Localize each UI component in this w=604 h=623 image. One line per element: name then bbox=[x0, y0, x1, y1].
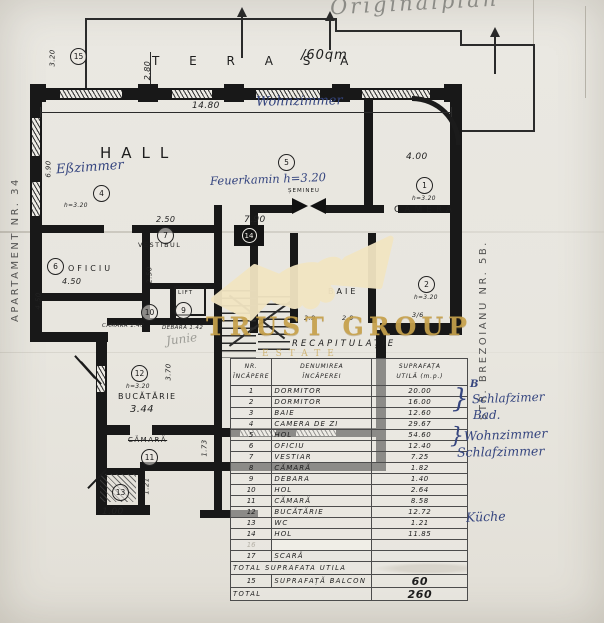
terrace-outline bbox=[85, 18, 335, 20]
c-name: BAIE bbox=[272, 408, 372, 419]
recapitulation-title: RECAPITULAȚIE bbox=[292, 339, 396, 349]
c-nr: 1 bbox=[231, 386, 272, 397]
dim-camera-width: 4.00 bbox=[406, 152, 428, 162]
semineu-label: ȘEMINEU bbox=[288, 188, 320, 194]
table-row: 1DORMITOR20.00 bbox=[231, 386, 468, 397]
dim-hall-left: 6.90 bbox=[45, 160, 53, 177]
ceiling-height-note: h=3.20 bbox=[414, 295, 438, 301]
wall-segment bbox=[364, 100, 373, 205]
room-number-6: 6 bbox=[47, 258, 64, 275]
table-row: 12BUCĂTĂRIE12.72 bbox=[231, 507, 468, 518]
c-name: BUCĂTĂRIE bbox=[272, 507, 372, 518]
column-block bbox=[138, 84, 158, 102]
north-arrow-icon bbox=[329, 20, 331, 50]
dim-hol-width: 7.90 bbox=[244, 215, 266, 225]
c-name: HOL bbox=[272, 485, 372, 496]
header-area: SUPRAFAȚA UTILĂ (m.p.) bbox=[372, 359, 468, 386]
dim-wc-width: 1.00 bbox=[102, 507, 124, 517]
margin-note-schlafzimmer-2: Schlafzimmer bbox=[457, 443, 545, 460]
scanned-floor-plan-page: Originalplan 15 T E R A S A /60qm 2.80 3… bbox=[0, 0, 604, 623]
room-number-12: 12 bbox=[131, 365, 148, 382]
c-area: 1.40 bbox=[372, 474, 468, 485]
margin-note-kueche: Küche bbox=[466, 508, 506, 524]
c-name bbox=[272, 540, 372, 551]
table-row: 16 bbox=[231, 540, 468, 551]
c-nr: 5 bbox=[231, 430, 272, 441]
window-hatch bbox=[32, 118, 40, 156]
c-nr: 8 bbox=[231, 463, 272, 474]
recapitulation-table-wrap: NR. ÎNCĂPERE DENUMIREA ÎNCĂPEREI SUPRAFA… bbox=[230, 358, 468, 601]
c-name: HOL bbox=[272, 430, 372, 441]
room-number-7: 7 bbox=[157, 227, 174, 244]
paper-fold-line bbox=[585, 6, 586, 98]
dim-vestibul-width: 2.50 bbox=[156, 215, 175, 224]
room-number-1: 1 bbox=[416, 177, 433, 194]
room-number-9: 9 bbox=[175, 302, 192, 319]
table-row: 13WC1.21 bbox=[231, 518, 468, 529]
dim-terrace-left: 3.20 bbox=[49, 49, 57, 66]
room-number-10: 10 bbox=[141, 304, 158, 321]
wall-segment bbox=[258, 205, 294, 213]
dim-oficiu-width: 4.50 bbox=[62, 277, 81, 286]
table-row: 9DEBARA1.40 bbox=[231, 474, 468, 485]
table-row: 17SCARĂ bbox=[231, 551, 468, 562]
c-nr: 14 bbox=[231, 529, 272, 540]
header-text: NR. bbox=[233, 362, 269, 372]
street-note-right: STR. BREZOIANU NR. 5B. bbox=[478, 120, 489, 420]
header-text: DENUMIREA bbox=[274, 362, 369, 372]
c-nr: 2 bbox=[231, 397, 272, 408]
c-nr: 11 bbox=[231, 496, 272, 507]
c-nr: 3 bbox=[231, 408, 272, 419]
esszimmer-note: Eßzimmer bbox=[56, 158, 125, 178]
c-name: WC bbox=[272, 518, 372, 529]
c-nr: 15 bbox=[231, 575, 272, 588]
dimension-tick bbox=[40, 107, 41, 117]
table-row: 7VESTIAR7.25 bbox=[231, 452, 468, 463]
dim-left-lower: 4.50 bbox=[35, 292, 43, 309]
street-note-left: APARTAMENT NR. 34 bbox=[10, 82, 21, 322]
c-area: 8.58 bbox=[372, 496, 468, 507]
table-row: 14HOL11.85 bbox=[231, 529, 468, 540]
terrace-outline bbox=[460, 44, 535, 46]
debara-area-note: DEBARA 1.42 bbox=[162, 325, 203, 331]
camara-area-note: CĂMARĂ 1.40 bbox=[102, 323, 144, 329]
window-hatch bbox=[172, 90, 212, 98]
c-nr: 16 bbox=[231, 540, 272, 551]
c-nr: 6 bbox=[231, 441, 272, 452]
terrace-outline bbox=[335, 30, 462, 32]
dimension-tick bbox=[451, 107, 452, 117]
room-number-2: 2 bbox=[418, 276, 435, 293]
room-number-11: 11 bbox=[141, 449, 158, 466]
c-area bbox=[372, 540, 468, 551]
table-row: 6OFICIU12.40 bbox=[231, 441, 468, 452]
wall-segment bbox=[42, 293, 142, 301]
wall-segment bbox=[42, 225, 104, 233]
pencil-scribble: Junie bbox=[165, 330, 198, 348]
ceiling-height-note: h=3.20 bbox=[64, 203, 88, 209]
header-text: ÎNCĂPERE bbox=[233, 372, 269, 382]
margin-brace: } bbox=[452, 384, 469, 414]
header-nr: NR. ÎNCĂPERE bbox=[231, 359, 272, 386]
footer-value: 60 bbox=[372, 575, 468, 588]
table-footer-row: TOTAL260 bbox=[231, 588, 468, 601]
terrace-outline bbox=[533, 44, 535, 132]
lift-label: LIFT bbox=[178, 290, 193, 296]
wall-segment bbox=[326, 205, 384, 213]
footer-label: SUPRAFAȚĂ BALCON bbox=[272, 575, 372, 588]
wall-segment bbox=[152, 425, 214, 435]
c-area: 12.72 bbox=[372, 507, 468, 518]
c-area: 1.82 bbox=[372, 463, 468, 474]
north-arrow-icon bbox=[241, 16, 243, 58]
dim-overall-width: 14.80 bbox=[192, 101, 220, 111]
table-row: 8CĂMARĂ1.82 bbox=[231, 463, 468, 474]
room-number-13: 13 bbox=[112, 484, 129, 501]
c-nr: 10 bbox=[231, 485, 272, 496]
c-name: CĂMARĂ bbox=[272, 496, 372, 507]
c-area: 7.25 bbox=[372, 452, 468, 463]
c-name: HOL bbox=[272, 529, 372, 540]
recap-table-footer: TOTAL SUPRAFATA UTILA15SUPRAFAȚĂ BALCON6… bbox=[231, 562, 468, 601]
column-block bbox=[224, 84, 244, 102]
table-row: 5HOL54.60 bbox=[231, 430, 468, 441]
c-nr: 12 bbox=[231, 507, 272, 518]
c-nr: 4 bbox=[231, 419, 272, 430]
top-margin-handwriting: Originalplan bbox=[329, 0, 499, 19]
fireplace-icon bbox=[310, 198, 326, 214]
room-number-4: 4 bbox=[93, 185, 110, 202]
north-arrow-icon bbox=[494, 36, 496, 74]
c-name: OFICIU bbox=[272, 441, 372, 452]
camara-label-struck: CĂMARĂ bbox=[128, 436, 167, 444]
column-block bbox=[444, 84, 462, 102]
terrace-area-note: /60qm bbox=[301, 48, 348, 63]
c-name: DORMITOR bbox=[272, 397, 372, 408]
recapitulation-table: NR. ÎNCĂPERE DENUMIREA ÎNCĂPEREI SUPRAFA… bbox=[230, 358, 468, 601]
margin-letter-b: B bbox=[470, 379, 478, 390]
wohnzimmer-note: Wohnzimmer bbox=[256, 93, 343, 110]
room-number-15: 15 bbox=[70, 48, 87, 65]
header-text: ÎNCĂPEREI bbox=[274, 372, 369, 382]
watermark-brand: TRUST GROUP bbox=[206, 312, 472, 341]
footer-value bbox=[372, 562, 468, 575]
c-nr: 17 bbox=[231, 551, 272, 562]
recap-table-body: 1DORMITOR20.002DORMITOR16.003BAIE12.604C… bbox=[231, 386, 468, 562]
dimension-line bbox=[40, 112, 452, 113]
margin-note-schlafzimmer-1: Schlafzimer bbox=[472, 390, 545, 407]
c-area bbox=[372, 551, 468, 562]
ceiling-height-note: h=3.20 bbox=[412, 196, 436, 202]
footer-label: TOTAL bbox=[231, 588, 372, 601]
c-area: 2.64 bbox=[372, 485, 468, 496]
header-name: DENUMIREA ÎNCĂPEREI bbox=[272, 359, 372, 386]
table-row: 11CĂMARĂ8.58 bbox=[231, 496, 468, 507]
fireplace-icon bbox=[292, 198, 308, 214]
table-row: 10HOL2.64 bbox=[231, 485, 468, 496]
paper-fold-line bbox=[533, 0, 534, 46]
c-nr: 13 bbox=[231, 518, 272, 529]
oficiu-label: OFICIU bbox=[68, 264, 113, 273]
margin-note-bad: Bad. bbox=[473, 408, 500, 422]
table-footer-row: TOTAL SUPRAFATA UTILA bbox=[231, 562, 468, 575]
dim-oficiu-height: 2.50 bbox=[146, 266, 154, 283]
c-name: SCARĂ bbox=[272, 551, 372, 562]
c-name: CAMERA DE ZI bbox=[272, 419, 372, 430]
header-text: UTILĂ (m.p.) bbox=[374, 372, 465, 382]
table-header-row: NR. ÎNCĂPERE DENUMIREA ÎNCĂPEREI SUPRAFA… bbox=[231, 359, 468, 386]
c-name: DORMITOR bbox=[272, 386, 372, 397]
dim-kitchen-height: 3.70 bbox=[165, 363, 173, 380]
window-hatch bbox=[32, 182, 40, 216]
c-area: 11.85 bbox=[372, 529, 468, 540]
wall-segment bbox=[96, 425, 130, 435]
room-number-5: 5 bbox=[278, 154, 295, 171]
c-name: CĂMARĂ bbox=[272, 463, 372, 474]
header-text: SUPRAFAȚA bbox=[374, 362, 465, 372]
table-row: 3BAIE12.60 bbox=[231, 408, 468, 419]
c-area: 1.21 bbox=[372, 518, 468, 529]
dim-wc-height: 1.21 bbox=[143, 477, 151, 494]
c-nr: 7 bbox=[231, 452, 272, 463]
dim-camara-height: 1.73 bbox=[201, 439, 209, 456]
c-nr: 9 bbox=[231, 474, 272, 485]
table-footer-row: 15SUPRAFAȚĂ BALCON60 bbox=[231, 575, 468, 588]
feuerkamin-note: Feuerkamin h=3.20 bbox=[210, 170, 326, 188]
window-hatch bbox=[60, 90, 122, 98]
terrace-outline bbox=[462, 130, 534, 132]
ceiling-height-note: h=3.20 bbox=[126, 384, 150, 390]
table-row: 4CAMERA DE ZI29.67 bbox=[231, 419, 468, 430]
table-row: 2DORMITOR16.00 bbox=[231, 397, 468, 408]
footer-label: TOTAL SUPRAFATA UTILA bbox=[231, 562, 372, 575]
column-block bbox=[30, 84, 46, 102]
dim-terrace-height: 2.80 bbox=[143, 61, 152, 80]
margin-note-wohnzimmer: Wohnzimmer bbox=[464, 426, 548, 444]
c-name: DEBARA bbox=[272, 474, 372, 485]
c-name: VESTIAR bbox=[272, 452, 372, 463]
dim-kitchen-width: 3.44 bbox=[130, 404, 154, 415]
footer-value: 260 bbox=[372, 588, 468, 601]
camera-label: CAMERA bbox=[394, 205, 456, 215]
bucatarie-label: BUCĂTĂRIE bbox=[118, 392, 177, 401]
